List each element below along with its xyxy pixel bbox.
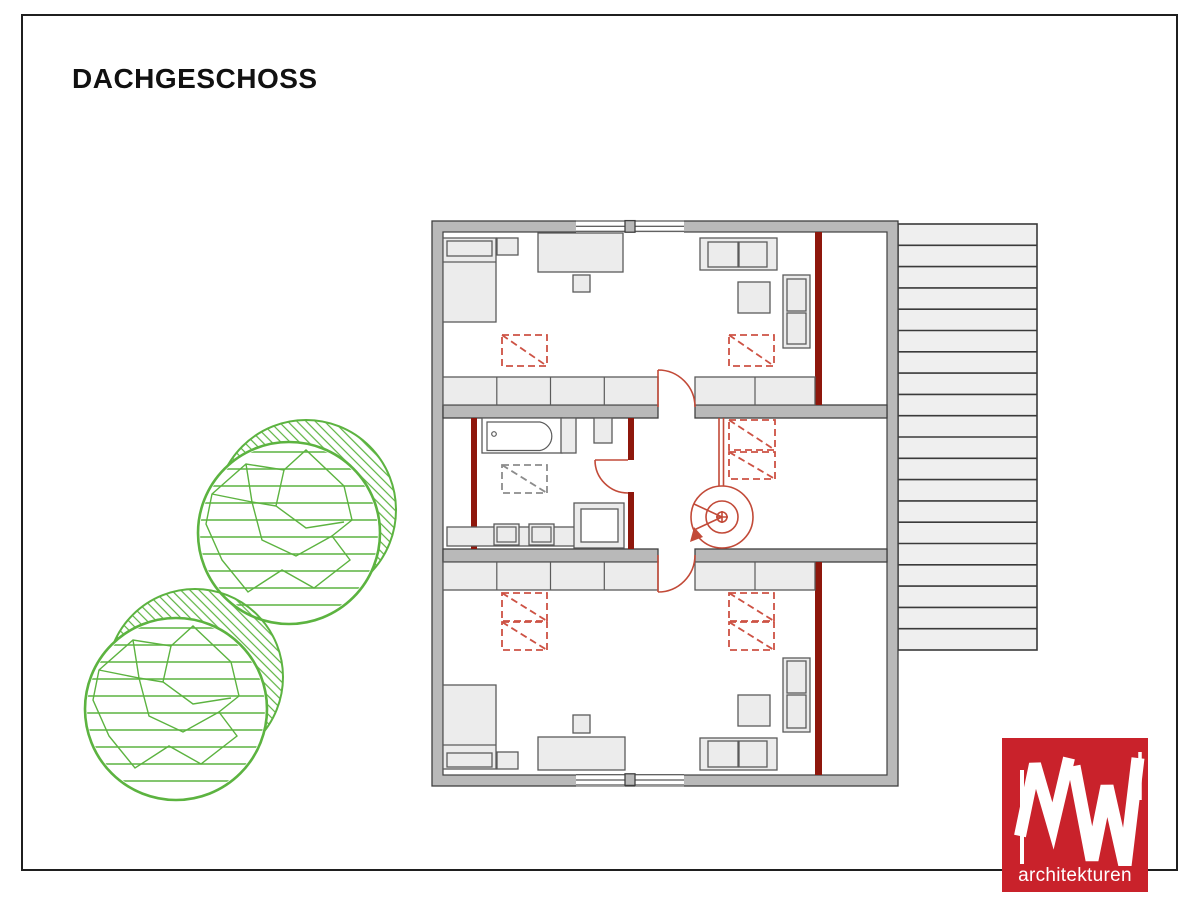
chair-symbol (573, 715, 590, 733)
wardrobe-row (443, 377, 815, 405)
bathtub-symbol (482, 418, 576, 453)
roof-terrace (898, 224, 1037, 650)
wardrobe-row (443, 562, 815, 590)
nightstand-symbol (497, 752, 518, 769)
nightstand-symbol (497, 238, 518, 255)
window-symbol (635, 773, 684, 786)
window-symbol (576, 220, 625, 233)
window-pier (625, 774, 635, 786)
tree-symbol-lower (85, 589, 283, 800)
logo-subtitle: architekturen (1002, 865, 1148, 887)
window-pier (625, 221, 635, 233)
window-symbol (576, 773, 625, 786)
shower-symbol (574, 503, 624, 548)
drawing-sheet: DACHGESCHOSS (0, 0, 1200, 900)
table-symbol (738, 282, 770, 313)
exterior-walls (432, 221, 898, 786)
toilet-symbol (594, 418, 612, 443)
washbasin-counter (447, 524, 575, 546)
table-symbol (738, 695, 770, 726)
window-symbol (635, 220, 684, 233)
tree-symbol-upper (198, 420, 396, 624)
chair-symbol (573, 275, 590, 292)
logo: architekturen (1002, 738, 1148, 892)
mw-monogram (1002, 738, 1148, 866)
